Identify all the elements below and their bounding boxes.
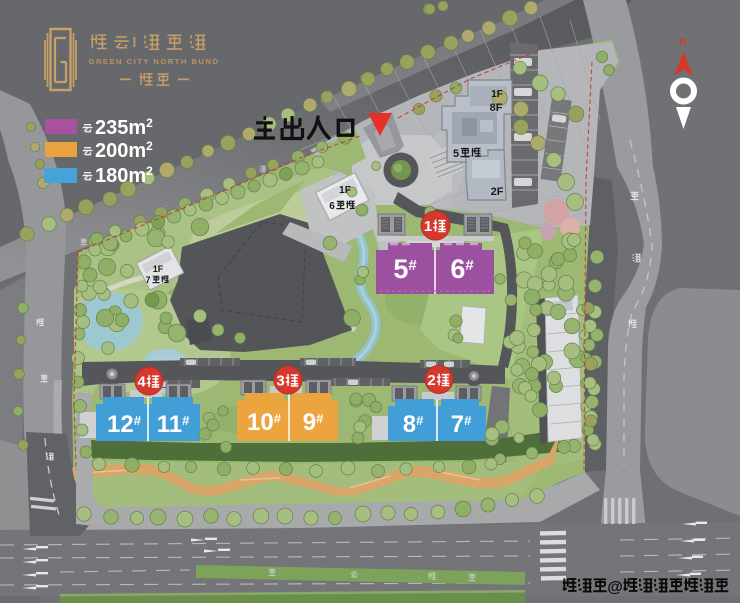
svg-text:4: 4 [137,374,146,391]
svg-text:180m2: 180m2 [95,164,153,187]
svg-text:2: 2 [427,372,435,389]
svg-text:8F: 8F [490,102,503,114]
svg-text:N: N [679,37,686,48]
svg-text:235m2: 235m2 [95,116,153,139]
svg-text:5: 5 [453,148,459,160]
svg-text:6: 6 [329,201,335,212]
svg-text:1: 1 [424,218,432,235]
svg-text:@: @ [607,579,623,596]
svg-text:200m2: 200m2 [95,139,153,162]
svg-text:1F: 1F [491,89,503,100]
svg-text:7: 7 [145,275,150,285]
svg-text:3: 3 [276,373,284,390]
svg-text:1F: 1F [153,264,164,274]
svg-text:2F: 2F [491,186,504,198]
svg-text:1F: 1F [339,185,351,196]
svg-text:GREEN CITY NORTH BUND: GREEN CITY NORTH BUND [89,57,220,66]
